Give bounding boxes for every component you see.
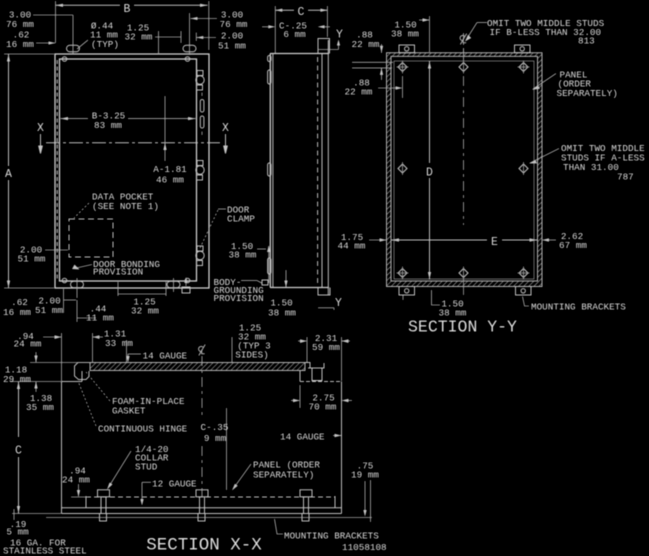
svg-text:Y: Y [336,29,343,42]
svg-text:44 mm: 44 mm [338,241,366,252]
svg-text:70 mm: 70 mm [309,402,337,413]
svg-text:67 mm: 67 mm [559,240,587,251]
svg-text:14 GAUGE: 14 GAUGE [143,351,188,362]
svg-text:C: C [15,445,22,458]
svg-text:83 mm: 83 mm [94,120,122,131]
svg-text:59 mm: 59 mm [312,342,340,353]
svg-text:51 mm: 51 mm [35,305,63,316]
svg-text:MOUNTING BRACKETS: MOUNTING BRACKETS [284,531,379,542]
svg-text:24 mm: 24 mm [14,339,42,350]
svg-text:C-.35: C-.35 [201,422,229,433]
svg-text:GASKET: GASKET [112,406,146,417]
svg-text:(SEE NOTE 1): (SEE NOTE 1) [92,201,159,212]
svg-text:11058108: 11058108 [342,542,387,553]
svg-text:32 mm: 32 mm [125,32,153,43]
svg-text:51 mm: 51 mm [218,41,246,52]
svg-text:C: C [298,6,305,19]
svg-text:76 mm: 76 mm [220,19,248,30]
svg-text:38 mm: 38 mm [268,308,296,319]
svg-text:SEPARATELY): SEPARATELY) [253,470,314,481]
svg-text:MOUNTING BRACKETS: MOUNTING BRACKETS [531,302,626,313]
svg-text:76 mm: 76 mm [6,19,34,30]
svg-text:X: X [37,122,44,135]
svg-text:5 mm: 5 mm [6,527,29,538]
svg-text:D: D [426,167,433,180]
svg-text:33 mm: 33 mm [105,338,133,349]
svg-text:35 mm: 35 mm [26,402,54,413]
svg-text:STAINLESS STEEL: STAINLESS STEEL [3,546,87,556]
svg-text:14 GAUGE: 14 GAUGE [280,432,325,443]
svg-text:X: X [222,122,229,135]
svg-text:24 mm: 24 mm [62,475,90,486]
svg-text:CLAMP: CLAMP [227,214,255,225]
svg-text:38 mm: 38 mm [229,250,257,261]
svg-text:A: A [5,168,12,181]
svg-text:SIDES): SIDES) [235,350,268,361]
svg-text:16 mm: 16 mm [6,39,34,50]
svg-text:32 mm: 32 mm [131,306,159,317]
svg-text:16 mm: 16 mm [3,307,31,318]
svg-text:46 mm: 46 mm [156,175,184,186]
svg-text:SEPARATELY): SEPARATELY) [557,88,618,99]
svg-text:STUD: STUD [135,462,158,473]
svg-text:51 mm: 51 mm [18,254,46,265]
svg-text:CONTINUOUS HINGE: CONTINUOUS HINGE [98,424,188,435]
svg-text:Y: Y [335,297,342,310]
svg-text:PROVISION: PROVISION [214,293,264,304]
svg-text:A-1.81: A-1.81 [153,164,187,175]
svg-text:6 mm: 6 mm [283,29,306,40]
svg-text:22 mm: 22 mm [345,87,373,98]
svg-text:9 mm: 9 mm [204,433,227,444]
svg-text:SECTION Y-Y: SECTION Y-Y [408,318,517,337]
svg-text:PROVISION: PROVISION [93,267,143,278]
svg-text:787: 787 [617,171,634,182]
svg-text:(TYP): (TYP) [91,39,119,50]
svg-text:29 mm: 29 mm [3,374,31,385]
svg-text:SECTION X-X: SECTION X-X [146,536,262,556]
svg-text:38 mm: 38 mm [391,29,419,40]
svg-text:11 mm: 11 mm [86,313,114,324]
svg-text:B: B [124,3,131,16]
svg-text:813: 813 [578,36,595,47]
svg-text:22 mm: 22 mm [352,39,380,50]
svg-text:12 GAUGE: 12 GAUGE [152,479,197,490]
svg-text:E: E [491,236,498,249]
svg-text:19 mm: 19 mm [351,470,379,481]
svg-text:THAN 31.00: THAN 31.00 [563,162,619,173]
